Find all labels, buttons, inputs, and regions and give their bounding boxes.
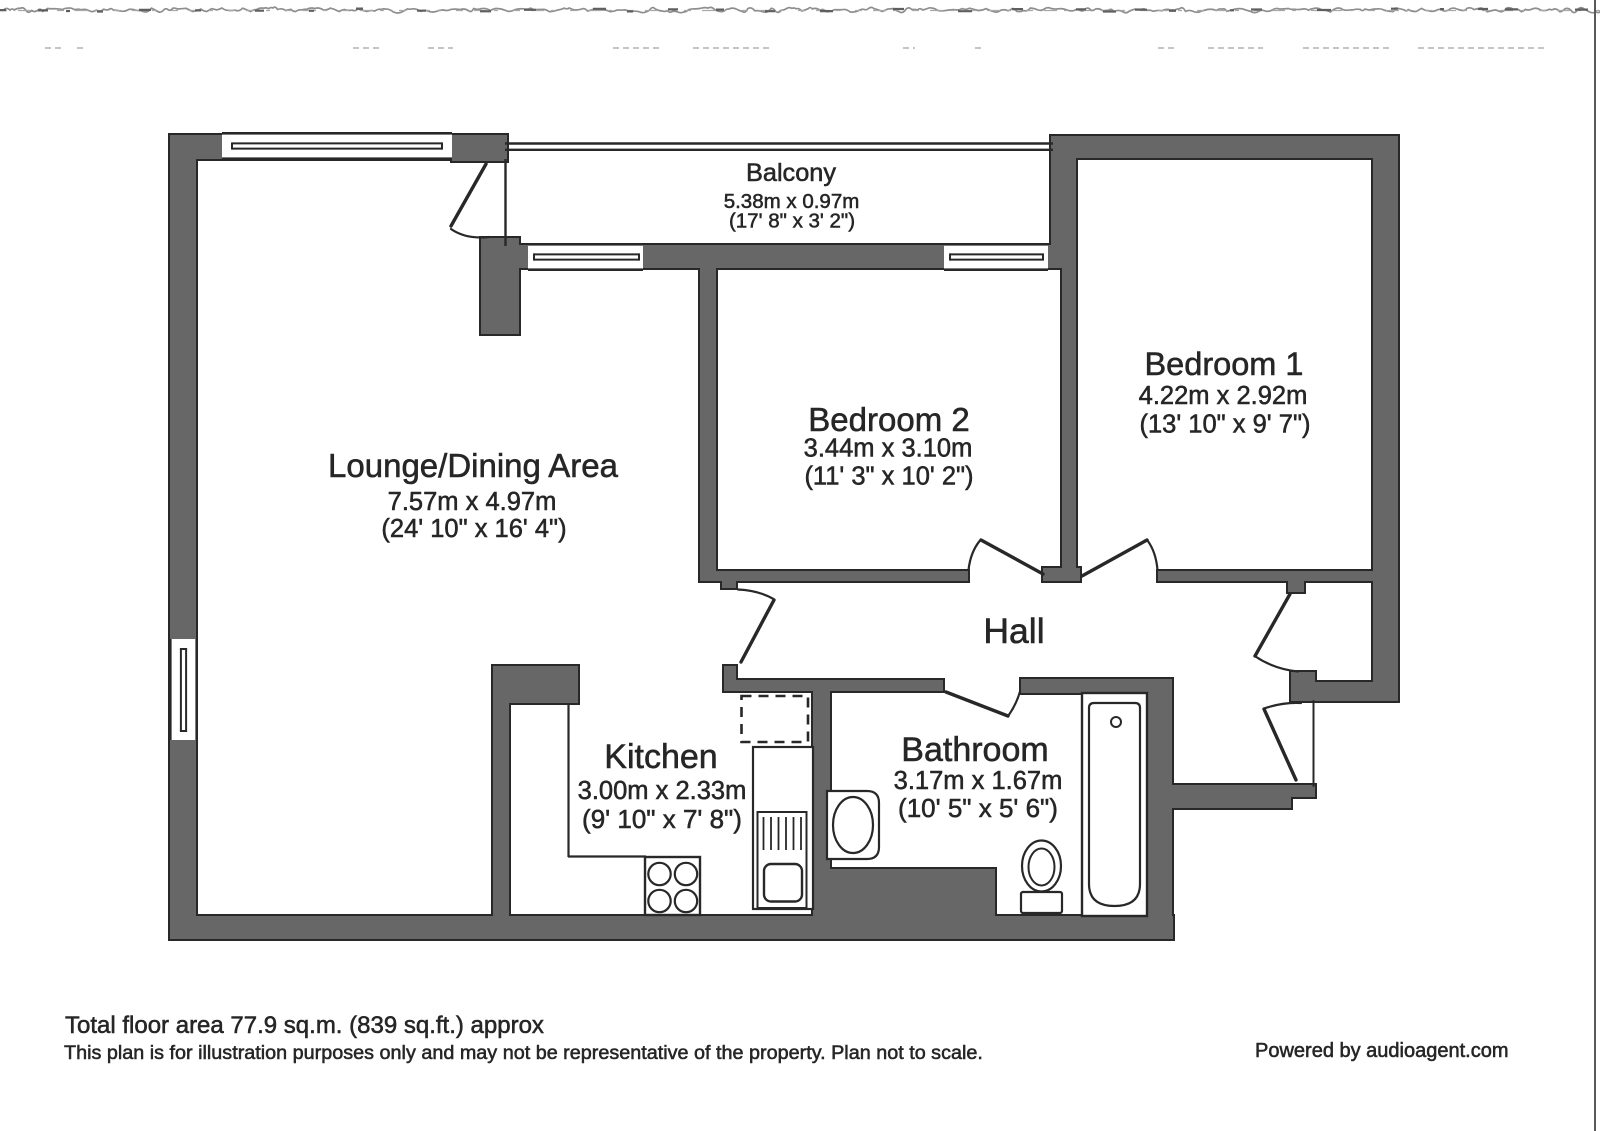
svg-text:Balcony: Balcony [746,159,836,187]
svg-text:(24' 10" x 16' 4"): (24' 10" x 16' 4") [381,515,566,543]
svg-text:Bathroom: Bathroom [901,731,1048,769]
svg-text:Bedroom 1: Bedroom 1 [1145,346,1304,382]
svg-text:3.17m x 1.67m: 3.17m x 1.67m [894,767,1063,795]
svg-text:(9' 10" x 7' 8"): (9' 10" x 7' 8") [582,804,742,834]
svg-text:Powered by audioagent.com: Powered by audioagent.com [1255,1040,1509,1062]
svg-text:Kitchen: Kitchen [604,738,717,776]
svg-text:3.44m x 3.10m: 3.44m x 3.10m [804,435,973,463]
svg-text:Bedroom 2: Bedroom 2 [808,401,969,438]
svg-text:3.00m x 2.33m: 3.00m x 2.33m [578,777,747,805]
svg-text:Lounge/Dining Area: Lounge/Dining Area [328,447,619,484]
svg-text:(10' 5" x 5' 6"): (10' 5" x 5' 6") [898,793,1058,823]
svg-text:(11' 3" x 10' 2"): (11' 3" x 10' 2") [804,463,973,491]
svg-text:(17' 8" x 3' 2"): (17' 8" x 3' 2") [729,210,855,233]
svg-text:7.57m x 4.97m: 7.57m x 4.97m [388,488,557,516]
svg-text:Hall: Hall [983,611,1044,651]
svg-text:(13' 10" x 9' 7"): (13' 10" x 9' 7") [1139,411,1310,439]
svg-text:4.22m x 2.92m: 4.22m x 2.92m [1139,382,1308,410]
svg-text:Total floor area 77.9 sq.m. (8: Total floor area 77.9 sq.m. (839 sq.ft.)… [65,1012,544,1039]
svg-text:This plan is for illustration: This plan is for illustration purposes o… [64,1042,983,1064]
